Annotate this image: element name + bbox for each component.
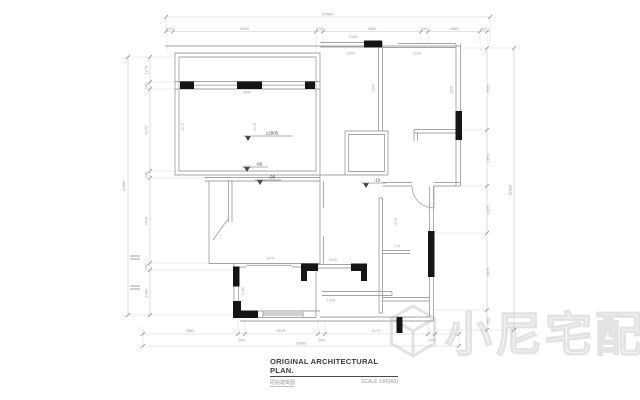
dim-label: 240	[428, 338, 435, 343]
level-markers: ±2905 -90 -90 -10	[242, 131, 386, 189]
dim-label: 14500	[322, 12, 334, 17]
dim-label: 1530	[327, 299, 335, 303]
dim-label: 3385	[368, 26, 378, 31]
dim-label: 1375	[486, 205, 491, 215]
dim-label: 4850	[240, 26, 250, 31]
dim-label: 2525	[486, 84, 491, 94]
dimension-ticks	[126, 15, 516, 348]
level-label: -90	[256, 162, 263, 167]
level-label: -90	[269, 175, 276, 180]
level-triangle-icon	[257, 180, 263, 185]
dim-label: 240	[144, 171, 149, 178]
door-arc	[412, 186, 434, 208]
drawing-subtitle-cn: 原始建筑图	[270, 379, 295, 387]
dim-label: 2975	[486, 267, 491, 277]
level-marker-a: -90	[242, 162, 268, 173]
dim-label: 1730	[241, 287, 245, 295]
level-marker-c: -10	[361, 178, 386, 189]
dim-label: 4175	[253, 123, 257, 131]
dim-label: 3565	[450, 26, 460, 31]
dim-label: 3170	[372, 328, 382, 333]
floorplan-drawing: 14500 240 4850 230 3385 240 3565 245 118…	[0, 0, 640, 400]
dim-label: 3090	[347, 52, 355, 56]
wall-fills	[180, 41, 462, 334]
drawing-canvas: 小尼宅配 14500 240 48	[0, 0, 640, 400]
dim-label: 10080	[295, 341, 307, 346]
dim-label: 3190	[413, 52, 421, 56]
dim-label: 650	[486, 317, 491, 324]
dim-label: 2040	[329, 258, 337, 262]
dim-label: 1485	[349, 35, 357, 39]
interior-dimension-labels: 4850 4175 4175 4850 3090 3190 1485 2900 …	[181, 35, 454, 303]
dim-label: 240	[238, 338, 245, 343]
dim-label: 230	[316, 26, 323, 31]
dim-label: 240	[318, 338, 325, 343]
dim-label: 5175	[144, 125, 149, 135]
dimension-labels: 14500 240 4850 230 3385 240 3565 245 118…	[121, 12, 513, 346]
dim-label: 1175	[144, 65, 149, 74]
level-triangle-icon	[245, 136, 251, 141]
drawing-scale: SCALE 1:80(A3)	[361, 379, 398, 385]
dim-label: 775	[394, 245, 400, 249]
title-block: ORIGINAL ARCHITECTURAL PLAN. 原始建筑图 SCALE…	[270, 357, 398, 387]
level-marker-datum: ±2905	[243, 131, 292, 142]
dim-label: 1330	[144, 288, 149, 298]
drawing-title: ORIGINAL ARCHITECTURAL PLAN.	[270, 357, 398, 377]
dim-label: 3525	[450, 86, 454, 94]
level-triangle-icon	[363, 183, 369, 188]
dim-label: 4175	[181, 123, 185, 131]
level-marker-b: -90	[255, 175, 281, 186]
dim-label: 4850	[243, 91, 251, 95]
dim-label: 2075	[266, 257, 274, 261]
dim-label: 2880	[186, 328, 196, 333]
dim-label: 3075	[277, 328, 287, 333]
dim-label: 1650	[486, 153, 491, 163]
dim-label: 2900	[372, 84, 376, 92]
dim-label: 240	[144, 263, 149, 270]
level-label: ±2905	[266, 131, 279, 136]
level-label: -10	[374, 178, 381, 183]
dim-label: 240	[166, 26, 173, 31]
dim-label: 245	[480, 26, 487, 31]
dim-label: 1175	[394, 218, 398, 226]
dim-label: 240	[421, 26, 428, 31]
dim-label: 240	[144, 82, 149, 89]
dim-label: 11880	[121, 180, 126, 192]
dim-label: 2975	[144, 216, 149, 226]
dim-label: 11880	[508, 184, 513, 196]
walls	[130, 43, 461, 322]
